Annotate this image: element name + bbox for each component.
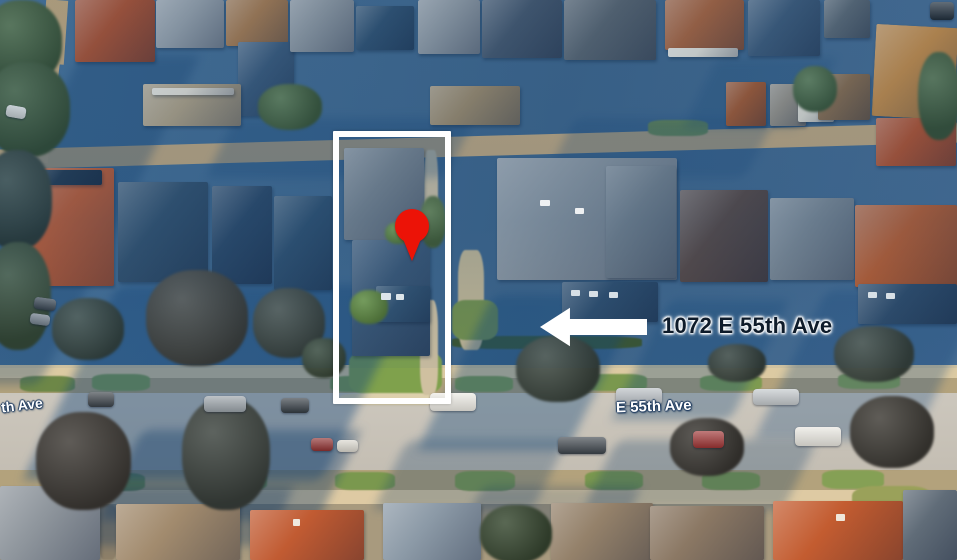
house-roof [118,182,208,282]
tree [850,396,934,468]
address-label: 1072 E 55th Ave [662,313,832,339]
street-label-center: E 55th Ave [616,397,692,417]
house-roof [650,506,764,560]
detail [609,292,618,298]
house-roof [562,282,658,322]
house-roof [290,0,354,52]
house-roof [116,504,240,560]
detail [571,290,580,296]
tree [480,505,552,560]
pin-tail [401,235,423,261]
car [204,396,246,412]
car [337,440,358,452]
detail [540,200,550,206]
car [281,398,309,413]
house-roof [726,82,766,126]
house-roof [274,196,332,290]
car [558,437,606,454]
house-roof [250,510,364,560]
detail [589,291,598,297]
house-roof [680,190,768,282]
tree [36,412,131,510]
car [930,2,954,20]
house-roof [551,503,653,560]
house-roof [564,0,656,60]
detail [836,514,845,521]
tree [146,270,248,366]
tree [258,84,322,130]
house-roof [824,0,870,38]
car [795,427,841,446]
tree [516,336,600,402]
house-roof [75,0,155,62]
car [88,392,114,407]
property-highlight-box [333,131,451,404]
house-roof [418,0,480,54]
house-roof [606,166,676,278]
tree [708,344,766,382]
house-roof [482,0,562,58]
house-roof [748,0,820,56]
house-roof [858,284,957,324]
house-roof [226,0,288,46]
tree [834,326,914,382]
house-roof [356,6,414,50]
tree [793,66,837,112]
location-pin-icon [395,209,429,261]
detail [868,292,877,298]
detail [293,519,300,526]
aerial-photo: 1072 E 55th Ave E 55th Ave th Ave [0,0,957,560]
car [753,389,799,405]
detail [886,293,895,299]
house-roof [152,88,234,95]
house-roof [383,503,481,560]
house-roof [668,48,738,57]
house-roof [430,86,520,125]
car [311,438,333,451]
house-roof [773,501,903,560]
house-roof [903,490,957,560]
house-roof [212,186,272,284]
house-roof [156,0,224,48]
tree [52,298,124,360]
tree [182,398,270,510]
tree [918,52,957,140]
detail [575,208,584,214]
house-roof [770,198,854,280]
car [693,431,724,448]
house-roof [665,0,744,50]
house-roof [855,205,957,287]
